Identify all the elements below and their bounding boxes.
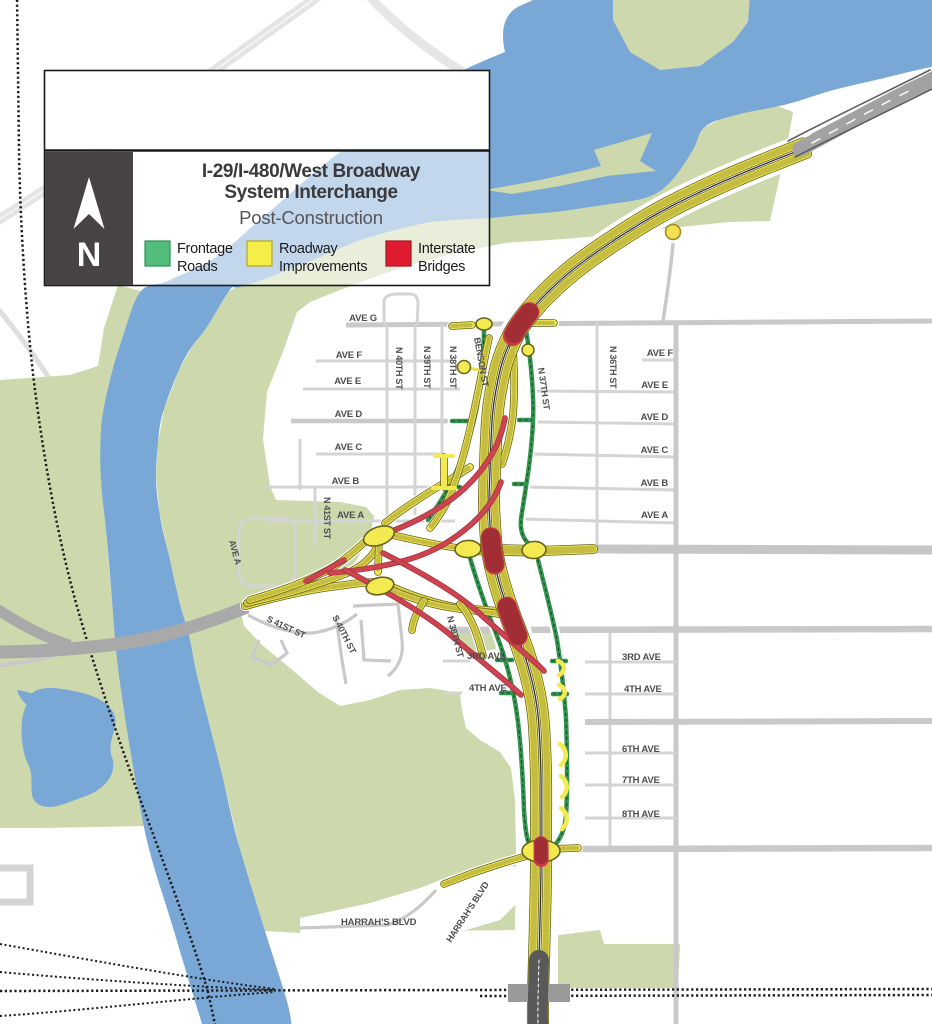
svg-text:AVE E: AVE E <box>641 380 668 391</box>
svg-text:3RD AVE: 3RD AVE <box>467 651 506 662</box>
svg-text:N: N <box>77 236 102 274</box>
svg-text:AVE B: AVE B <box>332 476 360 487</box>
svg-text:Roadway: Roadway <box>279 241 338 257</box>
svg-text:I-29/I-480/West Broadway: I-29/I-480/West Broadway <box>202 161 421 182</box>
svg-text:Bridges: Bridges <box>418 259 465 275</box>
svg-text:N 36TH ST: N 36TH ST <box>608 346 618 389</box>
svg-text:Roads: Roads <box>177 259 217 275</box>
svg-text:8TH AVE: 8TH AVE <box>622 809 660 820</box>
svg-text:HARRAH’S BLVD: HARRAH’S BLVD <box>341 917 417 928</box>
svg-text:AVE F: AVE F <box>336 350 363 361</box>
svg-text:AVE C: AVE C <box>335 442 363 453</box>
svg-text:AVE G: AVE G <box>349 313 377 324</box>
svg-text:AVE A: AVE A <box>337 510 364 521</box>
svg-text:AVE C: AVE C <box>641 445 669 456</box>
svg-text:Frontage: Frontage <box>177 241 233 257</box>
svg-text:Improvements: Improvements <box>279 259 367 275</box>
svg-text:AVE B: AVE B <box>641 478 669 489</box>
svg-text:AVE D: AVE D <box>335 409 363 420</box>
svg-text:N 39TH ST: N 39TH ST <box>422 346 432 389</box>
svg-text:AVE F: AVE F <box>647 348 674 359</box>
svg-text:7TH AVE: 7TH AVE <box>622 775 660 786</box>
svg-text:AVE A: AVE A <box>641 510 668 521</box>
svg-text:N 38TH ST: N 38TH ST <box>448 346 458 389</box>
svg-text:3RD AVE: 3RD AVE <box>622 652 661 663</box>
svg-text:4TH AVE: 4TH AVE <box>469 683 507 694</box>
svg-text:System Interchange: System Interchange <box>224 182 397 203</box>
svg-text:4TH AVE: 4TH AVE <box>624 684 662 695</box>
svg-text:AVE E: AVE E <box>334 376 361 387</box>
svg-text:6TH AVE: 6TH AVE <box>622 744 660 755</box>
svg-text:AVE D: AVE D <box>641 412 669 423</box>
svg-text:N 41ST ST: N 41ST ST <box>322 497 332 540</box>
svg-text:Interstate: Interstate <box>418 241 476 257</box>
svg-text:N 40TH ST: N 40TH ST <box>394 347 404 390</box>
svg-text:Post-Construction: Post-Construction <box>239 207 383 228</box>
